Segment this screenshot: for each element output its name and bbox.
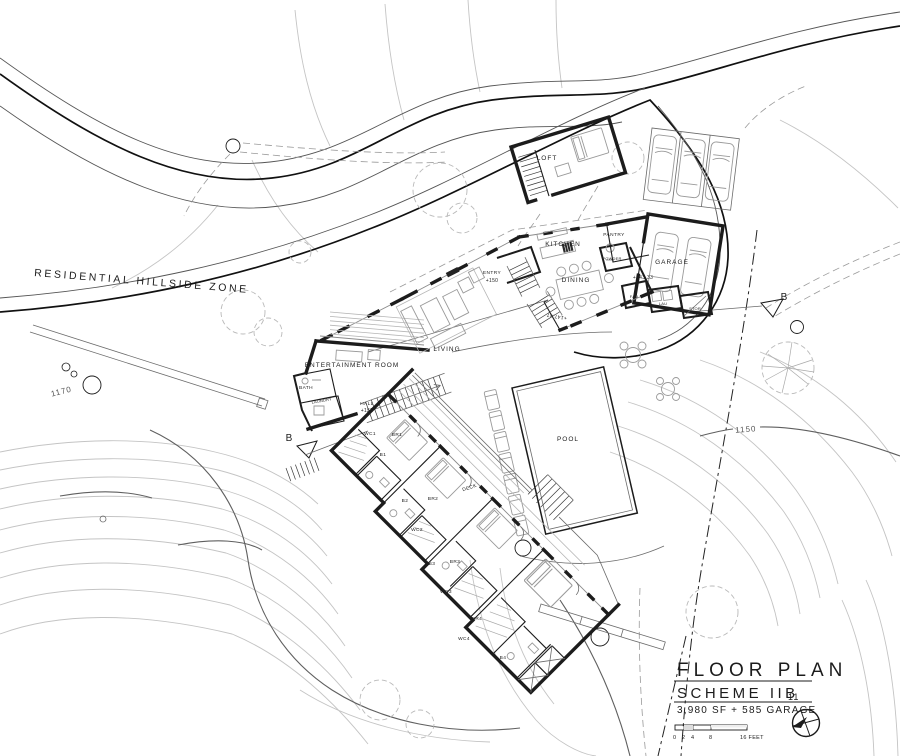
living-walls bbox=[322, 237, 548, 352]
branch-tree bbox=[762, 321, 814, 395]
loft bbox=[511, 117, 626, 202]
floor-plan-drawing: B B RESIDENTIAL HILLSIDE ZONE 1170 1150 bbox=[0, 0, 900, 756]
sheet-title: FLOOR PLAN bbox=[677, 660, 847, 681]
scale-tick-16: 16 FEET bbox=[740, 735, 764, 741]
contour-lines-left bbox=[0, 441, 368, 744]
retaining-wall bbox=[539, 604, 666, 650]
scale-tick-0: 0 bbox=[673, 735, 676, 741]
label-br3: BR3 bbox=[450, 559, 461, 565]
label-pool: POOL bbox=[557, 436, 579, 443]
room-labels: LOFT KITCHEN PANTRY POWDER GARAGE +143.3… bbox=[299, 155, 701, 661]
title-block: FLOOR PLAN SCHEME IIB 11 3,980 SF + 585 … bbox=[658, 636, 847, 756]
contour-lines-bottom bbox=[150, 430, 646, 756]
pool bbox=[512, 367, 637, 534]
label-wc2: WC2 bbox=[411, 527, 423, 533]
parking-stalls bbox=[643, 128, 739, 210]
label-wc3: WC3 bbox=[440, 589, 452, 595]
patio-edges bbox=[452, 332, 664, 563]
label-living: LIVING bbox=[433, 346, 460, 353]
label-hall: HALL bbox=[360, 401, 374, 407]
label-bath: BATH bbox=[299, 385, 313, 391]
label-hall-elev: +152 bbox=[361, 408, 373, 414]
label-loft: LOFT bbox=[537, 155, 558, 162]
scale-tick-2: 2 bbox=[682, 735, 685, 741]
section-label-left: B bbox=[286, 433, 293, 444]
label-wc4: WC4 bbox=[458, 636, 470, 642]
scale-bar: 0 2 4 8 16 FEET bbox=[673, 725, 764, 741]
scheme-subscript: 11 bbox=[788, 692, 799, 702]
label-entry: ENTRY bbox=[483, 270, 502, 276]
driveway-strip bbox=[30, 325, 268, 409]
label-garage: GARAGE bbox=[655, 259, 689, 266]
label-br4: BR4 bbox=[472, 616, 483, 622]
scheme-name: SCHEME IIB bbox=[677, 685, 799, 702]
label-br2: BR2 bbox=[428, 496, 439, 502]
label-wc1: WC1 bbox=[364, 431, 376, 437]
scale-tick-4: 4 bbox=[691, 735, 694, 741]
label-br1: BR1 bbox=[392, 432, 403, 438]
label-fau: FAU bbox=[630, 294, 638, 299]
label-lau: LAU bbox=[659, 301, 667, 306]
contour-label-1170: 1170 bbox=[50, 385, 73, 399]
label-b1: B1 bbox=[380, 452, 387, 458]
label-pantry: PANTRY bbox=[603, 232, 625, 238]
label-powder: POWDER bbox=[602, 256, 621, 261]
label-stor: STOR bbox=[689, 306, 701, 311]
stair-dining-pool bbox=[527, 291, 562, 327]
utility-marker-circle bbox=[226, 139, 240, 153]
dining-table bbox=[541, 256, 618, 313]
label-dining: DINING bbox=[562, 277, 591, 284]
label-deck: DECK bbox=[462, 483, 478, 493]
label-kitchen: KITCHEN bbox=[545, 241, 581, 248]
label-garage-elev: +143.33 bbox=[633, 275, 653, 281]
stair-deck-pool bbox=[528, 475, 573, 520]
label-laundry: LAUNDRY bbox=[311, 396, 332, 404]
label-dining-elev: +147.47 bbox=[546, 311, 567, 320]
label-b4: B4 bbox=[500, 655, 507, 661]
patio-table-2 bbox=[657, 378, 680, 401]
road-upper bbox=[0, 12, 900, 208]
scale-tick-8: 8 bbox=[709, 735, 712, 741]
trees bbox=[62, 142, 814, 738]
stair-exterior-west bbox=[286, 458, 319, 481]
floor-plan-sheet: B B RESIDENTIAL HILLSIDE ZONE 1170 1150 bbox=[0, 0, 900, 756]
contour-1150-line bbox=[700, 427, 900, 456]
label-entry-elev: +150 bbox=[486, 278, 498, 284]
label-b3: B3 bbox=[429, 561, 436, 567]
label-b2: B2 bbox=[402, 498, 409, 504]
contour-label-1150: 1150 bbox=[735, 424, 757, 434]
label-entertainment: ENTERTAINMENT ROOM bbox=[305, 362, 400, 369]
